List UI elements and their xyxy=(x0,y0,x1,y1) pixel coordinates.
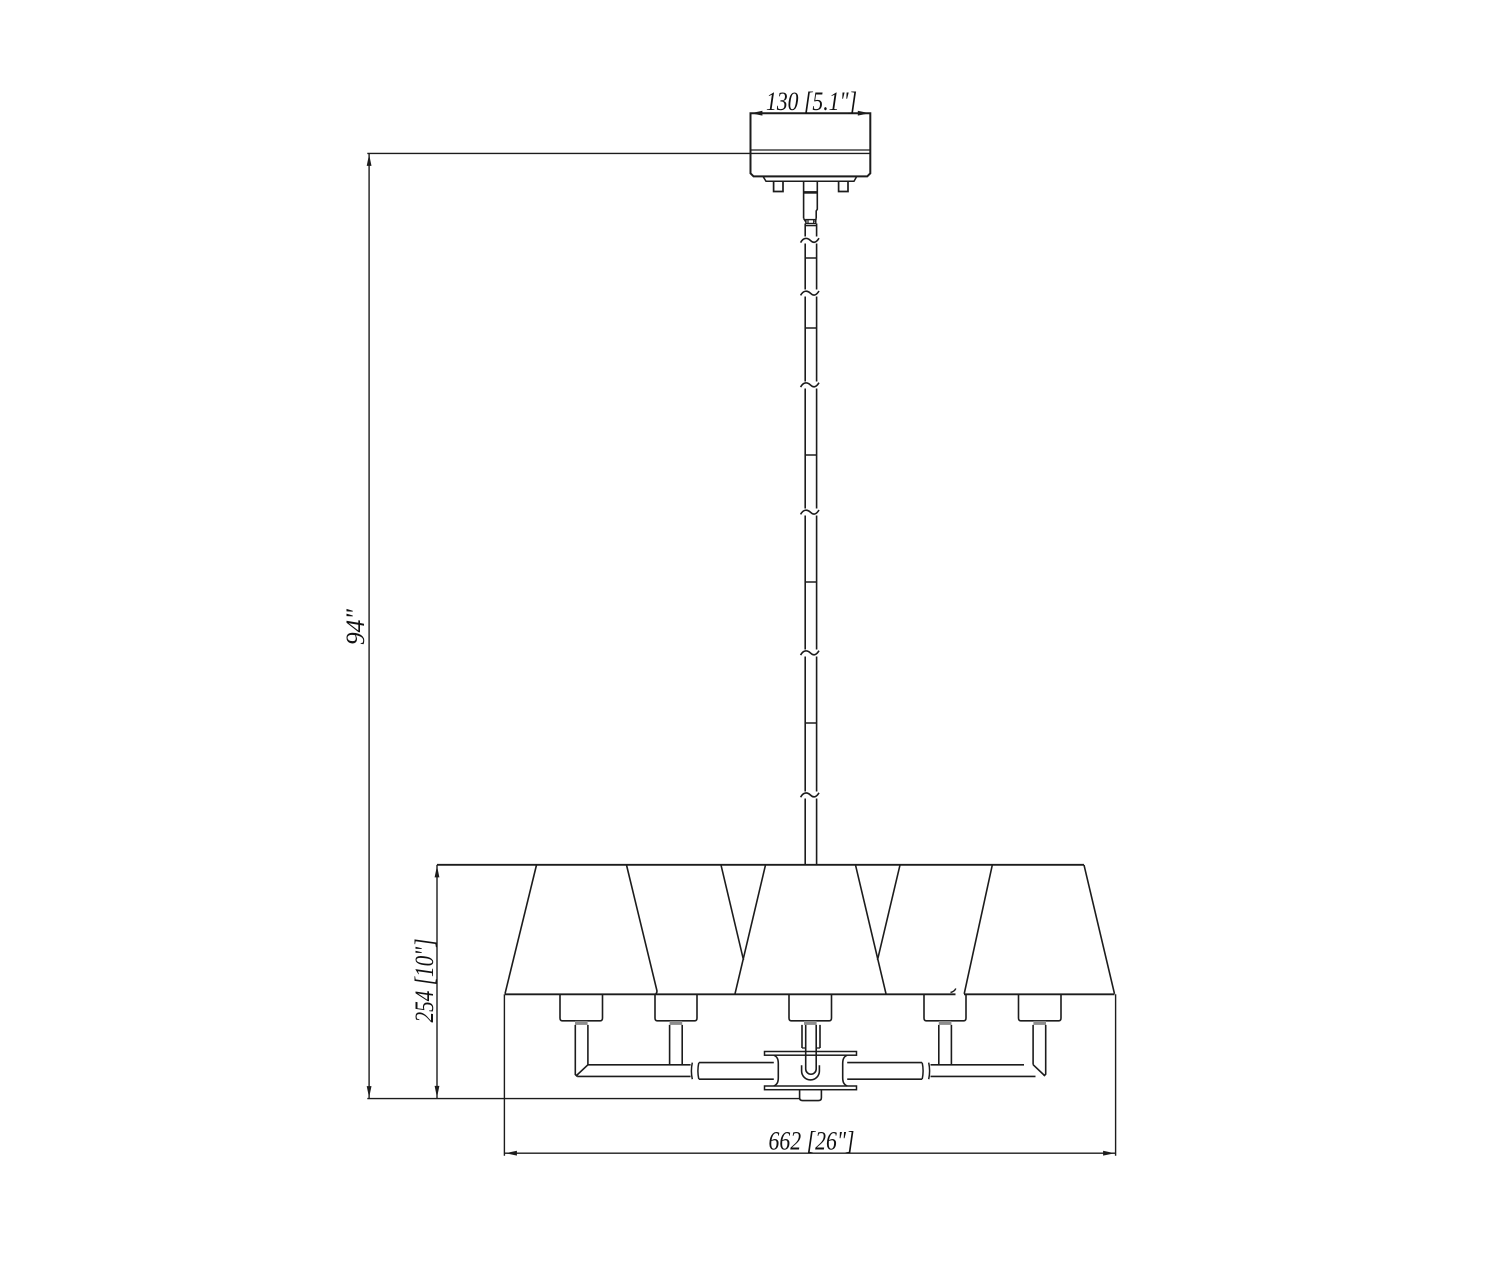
svg-text:94": 94" xyxy=(341,609,370,645)
svg-text:254 [10"]: 254 [10"] xyxy=(410,939,439,1023)
svg-text:662 [26"]: 662 [26"] xyxy=(769,1127,855,1156)
svg-text:130 [5.1"]: 130 [5.1"] xyxy=(766,87,857,116)
